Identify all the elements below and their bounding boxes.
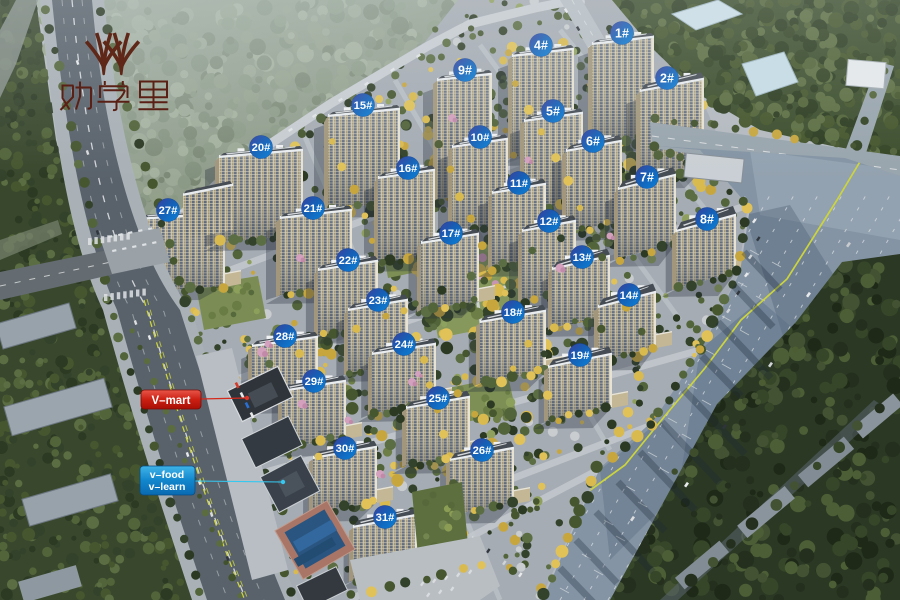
svg-text:30#: 30#	[336, 443, 355, 455]
svg-text:8#: 8#	[700, 213, 714, 227]
svg-text:23#: 23#	[369, 295, 388, 307]
svg-text:21#: 21#	[304, 203, 323, 215]
svg-text:25#: 25#	[429, 393, 448, 405]
svg-text:v–food: v–food	[150, 469, 184, 481]
svg-text:v–learn: v–learn	[149, 481, 186, 493]
svg-text:13#: 13#	[573, 252, 592, 264]
svg-text:22#: 22#	[339, 255, 358, 267]
svg-text:28#: 28#	[276, 331, 295, 343]
svg-text:31#: 31#	[376, 512, 395, 524]
svg-text:18#: 18#	[504, 307, 523, 319]
svg-text:27#: 27#	[159, 205, 178, 217]
svg-text:14#: 14#	[620, 290, 639, 302]
svg-text:29#: 29#	[305, 376, 324, 388]
svg-text:19#: 19#	[571, 350, 590, 362]
svg-text:26#: 26#	[473, 445, 492, 457]
svg-text:V–mart: V–mart	[152, 395, 191, 407]
svg-text:17#: 17#	[442, 228, 461, 240]
svg-text:12#: 12#	[540, 216, 559, 228]
svg-text:24#: 24#	[395, 339, 414, 351]
